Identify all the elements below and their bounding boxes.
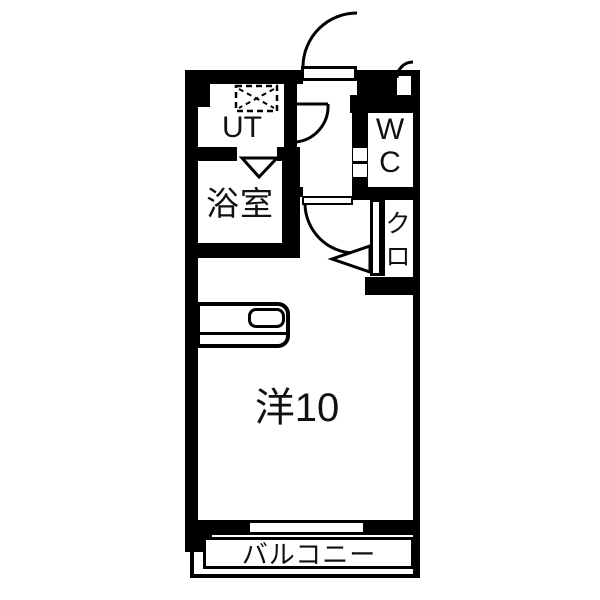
closet-door-leaf <box>370 199 382 276</box>
label-balcony: バルコニー <box>242 535 376 572</box>
label-closet-line1: ク <box>385 208 410 241</box>
wall-hall-stub <box>283 187 303 197</box>
label-closet-line2: ロ <box>385 241 410 274</box>
washer-pan-x-icon <box>239 89 274 108</box>
kitchen-counter <box>196 302 290 348</box>
label-bathroom: 浴室 <box>206 177 274 225</box>
label-utility: UT <box>222 111 262 145</box>
counter-divider <box>200 332 286 335</box>
kitchen-sink-icon <box>248 308 285 328</box>
hall-door-leaf <box>302 196 353 205</box>
wall-under-wc <box>352 187 420 200</box>
bath-door-marker-icon <box>242 158 277 177</box>
wall-closet-bottom <box>365 277 420 295</box>
entrance-door-leaf <box>301 66 357 81</box>
wc-door-jamb-lower <box>353 164 367 177</box>
wall-ut-bath-left <box>185 147 237 161</box>
label-closet: ク ロ <box>385 208 410 274</box>
entrance-door-arc-icon <box>303 13 357 66</box>
meter-box-notch <box>397 76 411 95</box>
wall-ut-hall <box>284 83 297 147</box>
wall-ut-corner <box>198 70 210 107</box>
floor-plan: UT 浴室 W C ク ロ 洋10 バルコニー <box>0 0 600 600</box>
hall-door-arc-icon <box>305 205 353 253</box>
closet-door-marker-icon <box>332 246 370 272</box>
wall-right <box>413 70 420 578</box>
washer-pan-icon <box>236 86 277 111</box>
balcony-rail-bottom <box>190 574 420 578</box>
label-toilet-line1: W <box>376 113 404 146</box>
label-western-room: 洋10 <box>255 375 340 433</box>
label-toilet-line2: C <box>376 146 404 179</box>
ut-door-arc-icon <box>296 104 328 142</box>
wc-door-jamb-upper <box>353 148 367 161</box>
wall-bath-bottom <box>185 243 300 258</box>
window <box>248 520 365 535</box>
label-toilet: W C <box>376 113 404 179</box>
